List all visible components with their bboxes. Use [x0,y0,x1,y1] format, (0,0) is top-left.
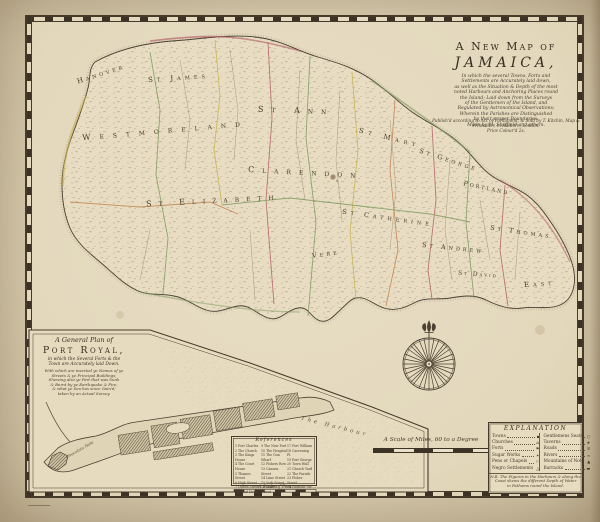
explanation-row: Negro Settlements△ [492,465,539,471]
explanation-label: Roads [543,446,556,451]
explanation-box: EXPLANATION Towns▪ Churches⌂ Forts⚑ Suga… [488,422,583,494]
references-box: References 1 Fort Charles 2 The Church 3… [231,436,317,486]
leader-dots [584,434,585,438]
leader-dots [529,460,535,464]
leader-dots [514,441,534,445]
explanation-label: Forts [492,446,503,451]
explanation-right-column: Gentlemens Seats○ Taverns★ Roads≡ Rivers… [539,433,590,471]
explanation-row: Barracks▬ [543,465,590,471]
explanation-label: Rivers [543,453,557,458]
map-title-jamaica: JAMAICA, [430,55,582,71]
explanation-label: Taverns [543,440,560,445]
explanation-label: Churches [492,440,513,445]
explanation-label: Sugar Works [492,453,520,458]
inset-title-line1: A General Plan of [36,336,132,344]
seat-symbol-icon: ○ [587,434,591,439]
leader-dots [565,466,585,470]
explanation-label: Mountains of Note [543,459,584,464]
explanation-note: N.B. The Figures in the Harbours & along… [489,473,582,489]
explanation-row: Mountains of Note▲ [543,459,590,465]
publisher-imprint: Publish'd according to Act of Parliament… [428,118,584,133]
explanation-label: Towns [492,434,506,439]
inset-description: With which are inserted ye Names of ye S… [36,369,132,397]
tavern-symbol-icon: ★ [587,440,591,445]
inset-title-block: A General Plan of Port Royal, in which t… [36,336,132,397]
map-title: A New Map of [430,40,582,53]
explanation-label: Pens or Chapels [492,459,527,464]
stain-spot [336,180,338,182]
explanation-label: Barracks [543,466,563,471]
leader-dots [505,447,534,451]
scale-of-miles-label: A Scale of Miles, 60 to a Degree [368,437,494,443]
plate-mark [28,505,50,506]
leader-dots [559,453,586,457]
river-symbol-icon: ≈ [587,453,591,458]
leader-dots [507,434,535,438]
antique-map-sheet: A New Map of JAMAICA, In which the sever… [0,0,600,522]
inset-title-line2: Port Royal, [36,345,132,356]
road-symbol-icon: ≡ [587,446,591,451]
explanation-title: EXPLANATION [489,425,582,432]
stain-spot [116,311,124,319]
compass-rose [403,321,455,390]
fleur-de-lis-icon [423,321,436,337]
leader-dots [562,441,585,445]
explanation-label: Negro Settlements [492,466,533,471]
leader-dots [558,447,585,451]
leader-dots [522,453,535,457]
stain-spot [535,325,545,335]
explanation-label: Gentlemens Seats [543,434,582,439]
scale-of-feet-label: A Scale of Feet [240,485,310,490]
barracks-symbol-icon: ▬ [586,466,590,471]
scale-of-miles-bar [373,448,494,453]
title-cartouche: A New Map of JAMAICA, In which the sever… [430,40,582,128]
explanation-left-column: Towns▪ Churches⌂ Forts⚑ Sugar Works✶ Pen… [492,433,539,471]
mountain-symbol-icon: ▲ [587,459,590,464]
inset-subtitle: in which the Several Forts & the Town ar… [36,357,132,367]
